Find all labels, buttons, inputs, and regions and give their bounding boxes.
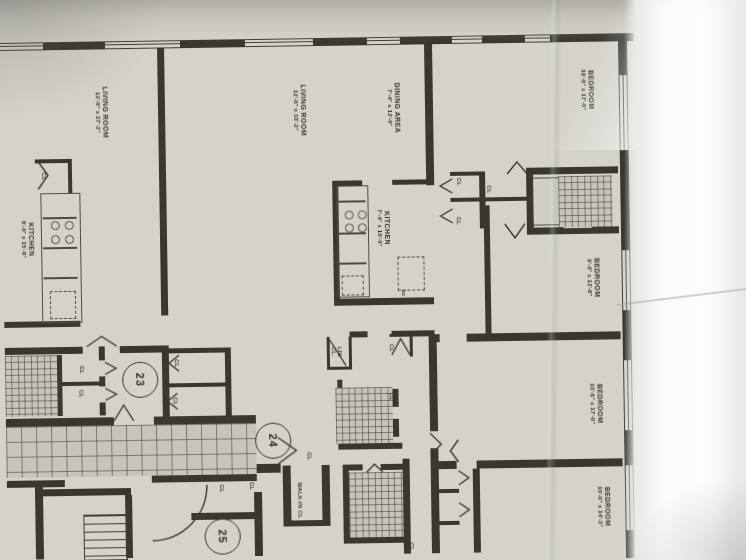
walk-in-closet-label: WALK-IN CL — [297, 482, 304, 518]
door-swing-symbols — [0, 0, 746, 560]
closet-label: CL — [174, 359, 180, 367]
closet-label: CL — [456, 178, 462, 186]
closet-label: CL — [409, 543, 415, 551]
room-dims: 16'-0" x 17'-0" — [579, 69, 587, 110]
room-label-kitchen-left: KITCHEN 8'-0" x 15'-6" — [19, 221, 35, 259]
room-label-bedroom-1: BEDROOM 16'-0" x 17'-0" — [579, 69, 595, 110]
broom-closet-label: bc — [401, 289, 407, 296]
closet-label: CL — [433, 471, 439, 479]
closet-label: CL — [79, 366, 85, 374]
room-name: LIVING ROOM — [298, 84, 307, 136]
linen-closet-label: LIN CL. — [330, 344, 343, 359]
room-dims: 12'-0" x 33'-2" — [291, 90, 299, 131]
apartment-number-text: 25 — [217, 529, 229, 543]
closet-label: CL — [219, 484, 225, 492]
closet-label: CL — [173, 397, 179, 405]
room-name: BEDROOM — [586, 70, 595, 109]
room-label-kitchen-center: KITCHEN 7'-4" x 10'-0" — [375, 209, 391, 247]
closet-label: CL — [41, 172, 47, 180]
floor-plan-drawing: LIVING ROOM 12'-0" x 27'-2" LIVING ROOM … — [0, 0, 746, 560]
closet-label: CL — [393, 425, 399, 433]
room-label-dining: DINING AREA 7'-4" x 12'-0" — [385, 83, 401, 134]
room-label-bedroom-3: BEDROOM 10'-6" x 17'-0" — [588, 383, 604, 424]
room-dims: 8'-0" x 15'-6" — [19, 221, 27, 259]
room-label-bedroom-4: BEDROOM 10'-0" x 14'-3" — [595, 486, 611, 527]
closet-label: CL — [389, 344, 395, 352]
room-name: LIVING ROOM — [100, 87, 109, 139]
closet-label: CL — [486, 185, 492, 193]
closet-label: CL — [249, 482, 255, 490]
room-dims: 10'-6" x 17'-0" — [588, 383, 596, 424]
room-name: BEDROOM — [592, 258, 601, 297]
room-dims: 7'-4" x 10'-0" — [375, 209, 383, 247]
room-name: KITCHEN — [26, 223, 35, 257]
closet-label: CL — [388, 393, 394, 401]
closet-label: CL — [434, 510, 440, 518]
room-name: DINING AREA — [392, 83, 401, 134]
room-dims: 12'-0" x 27'-2" — [93, 92, 101, 133]
room-dims: 10'-0" x 14'-3" — [595, 486, 603, 527]
room-name: BEDROOM — [595, 384, 604, 423]
room-label-bedroom-2: BEDROOM 9'-0" x 13'-6" — [585, 258, 601, 298]
floor-plan-photo: LIVING ROOM 12'-0" x 27'-2" LIVING ROOM … — [0, 0, 746, 560]
apartment-number-text: 24 — [267, 434, 279, 448]
closet-label: CL — [78, 390, 84, 398]
room-label-living-center: LIVING ROOM 12'-0" x 33'-2" — [291, 84, 307, 136]
closet-label: CL — [485, 206, 491, 214]
closet-label: CL — [456, 217, 462, 225]
apartment-number-text: 23 — [134, 373, 146, 387]
room-name: BEDROOM — [602, 487, 611, 526]
room-dims: 9'-0" x 13'-6" — [585, 259, 593, 297]
room-name: KITCHEN — [382, 211, 391, 245]
closet-label: CL — [306, 452, 312, 460]
room-dims: 7'-4" x 12'-0" — [385, 89, 393, 127]
room-label-living-left: LIVING ROOM 12'-0" x 27'-2" — [93, 87, 109, 139]
